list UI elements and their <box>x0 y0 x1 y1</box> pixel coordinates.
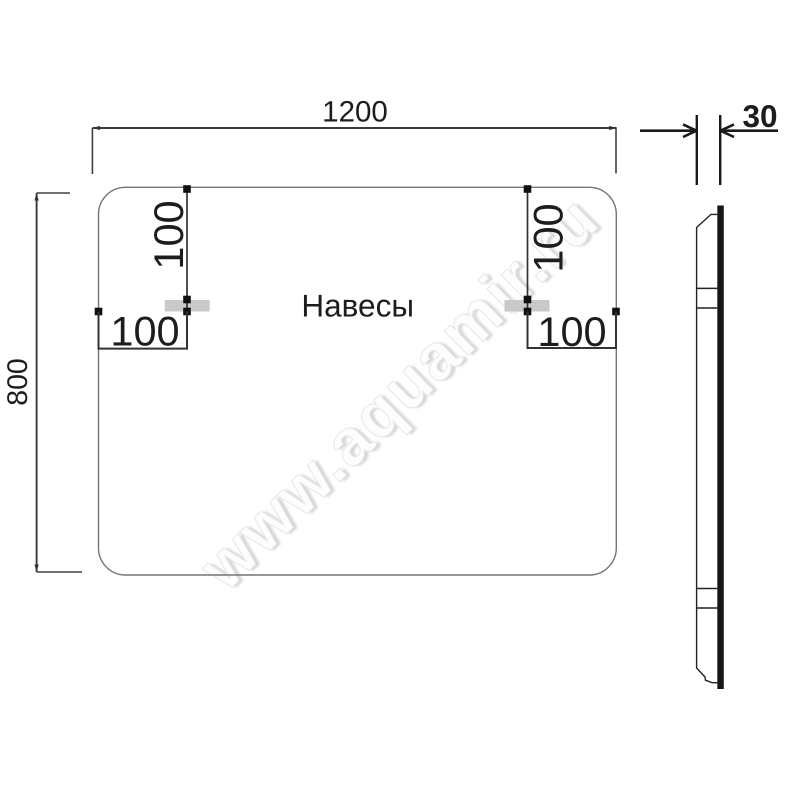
svg-text:Навесы: Навесы <box>301 288 414 324</box>
svg-text:100: 100 <box>525 203 572 272</box>
svg-text:100: 100 <box>537 308 606 355</box>
svg-text:100: 100 <box>110 307 179 354</box>
svg-text:1200: 1200 <box>322 96 388 129</box>
svg-text:30: 30 <box>742 98 777 134</box>
svg-text:800: 800 <box>2 358 34 406</box>
svg-text:100: 100 <box>145 200 192 269</box>
